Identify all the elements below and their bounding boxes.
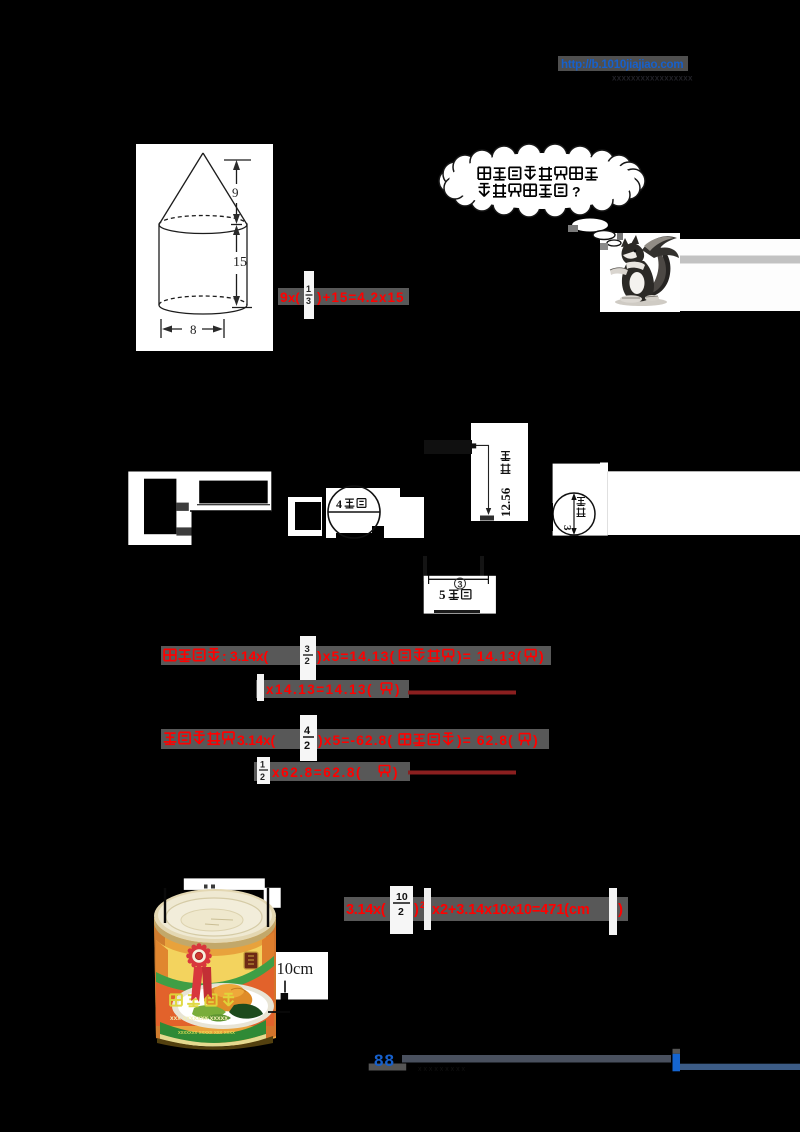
- svg-text:): ): [618, 901, 623, 918]
- svg-text:x x x x x x x x x: x x x x x x x x x: [418, 1066, 466, 1073]
- svg-text:5: 5: [439, 587, 446, 602]
- svg-text:)x5=-62.8(: )x5=-62.8(: [318, 732, 393, 748]
- svg-text:10cm: 10cm: [277, 959, 314, 978]
- svg-text:3.14x(: 3.14x(: [237, 732, 276, 748]
- svg-text:x62.8=62.8(: x62.8=62.8(: [272, 765, 362, 780]
- svg-text:2: 2: [305, 656, 310, 667]
- svg-text:)= 62.8(: )= 62.8(: [457, 732, 514, 748]
- svg-text:xxxxxxxxxxxxxxxxx: xxxxxxxxxxxxxxxxx: [612, 74, 693, 83]
- svg-text:3.14x(: 3.14x(: [346, 902, 386, 918]
- svg-text:)x5=14.13(: )x5=14.13(: [317, 648, 395, 664]
- svg-text:1: 1: [306, 284, 311, 294]
- svg-text:88: 88: [374, 1051, 395, 1070]
- svg-text:xxxxxxx xxxxx xxx xxxx: xxxxxxx xxxxx xxx xxxx: [178, 1030, 235, 1036]
- svg-text:8: 8: [190, 322, 197, 337]
- svg-text:2: 2: [304, 740, 310, 752]
- svg-text:12.56: 12.56: [498, 487, 513, 517]
- svg-text:2: 2: [260, 772, 265, 782]
- svg-text:3: 3: [305, 644, 310, 655]
- svg-text:?: ?: [572, 184, 581, 200]
- svg-text:1: 1: [260, 760, 265, 770]
- svg-text:x(: x(: [288, 290, 300, 305]
- svg-text:): ): [393, 765, 398, 780]
- svg-text:)= 14.13(: )= 14.13(: [457, 648, 522, 664]
- svg-text:): ): [414, 902, 419, 918]
- svg-text:): ): [539, 648, 544, 664]
- svg-text:9: 9: [280, 289, 288, 305]
- svg-text:2: 2: [398, 906, 404, 918]
- svg-text:x2+3.14x10x10=471(cm: x2+3.14x10x10=471(cm: [432, 902, 590, 918]
- svg-text:)+15=4.2x15: )+15=4.2x15: [317, 290, 405, 305]
- svg-text:3: 3: [458, 580, 463, 590]
- svg-text:9: 9: [232, 185, 239, 200]
- svg-text:10: 10: [396, 891, 408, 903]
- svg-text:): ): [395, 682, 400, 697]
- svg-text:4: 4: [336, 497, 342, 511]
- svg-text:): ): [533, 732, 538, 748]
- svg-text:3: 3: [561, 525, 573, 531]
- svg-text:http://b.1010jiajiao.com: http://b.1010jiajiao.com: [561, 59, 683, 71]
- svg-text:3: 3: [306, 296, 311, 306]
- svg-text:x14.13=14.13(: x14.13=14.13(: [266, 682, 373, 697]
- svg-text:: 3.14x(: : 3.14x(: [222, 648, 268, 664]
- svg-text:xxx xxxxxxx xxxxx: xxx xxxxxxx xxxxx: [170, 1015, 228, 1022]
- svg-text:15: 15: [233, 255, 247, 270]
- svg-text:4: 4: [304, 725, 311, 737]
